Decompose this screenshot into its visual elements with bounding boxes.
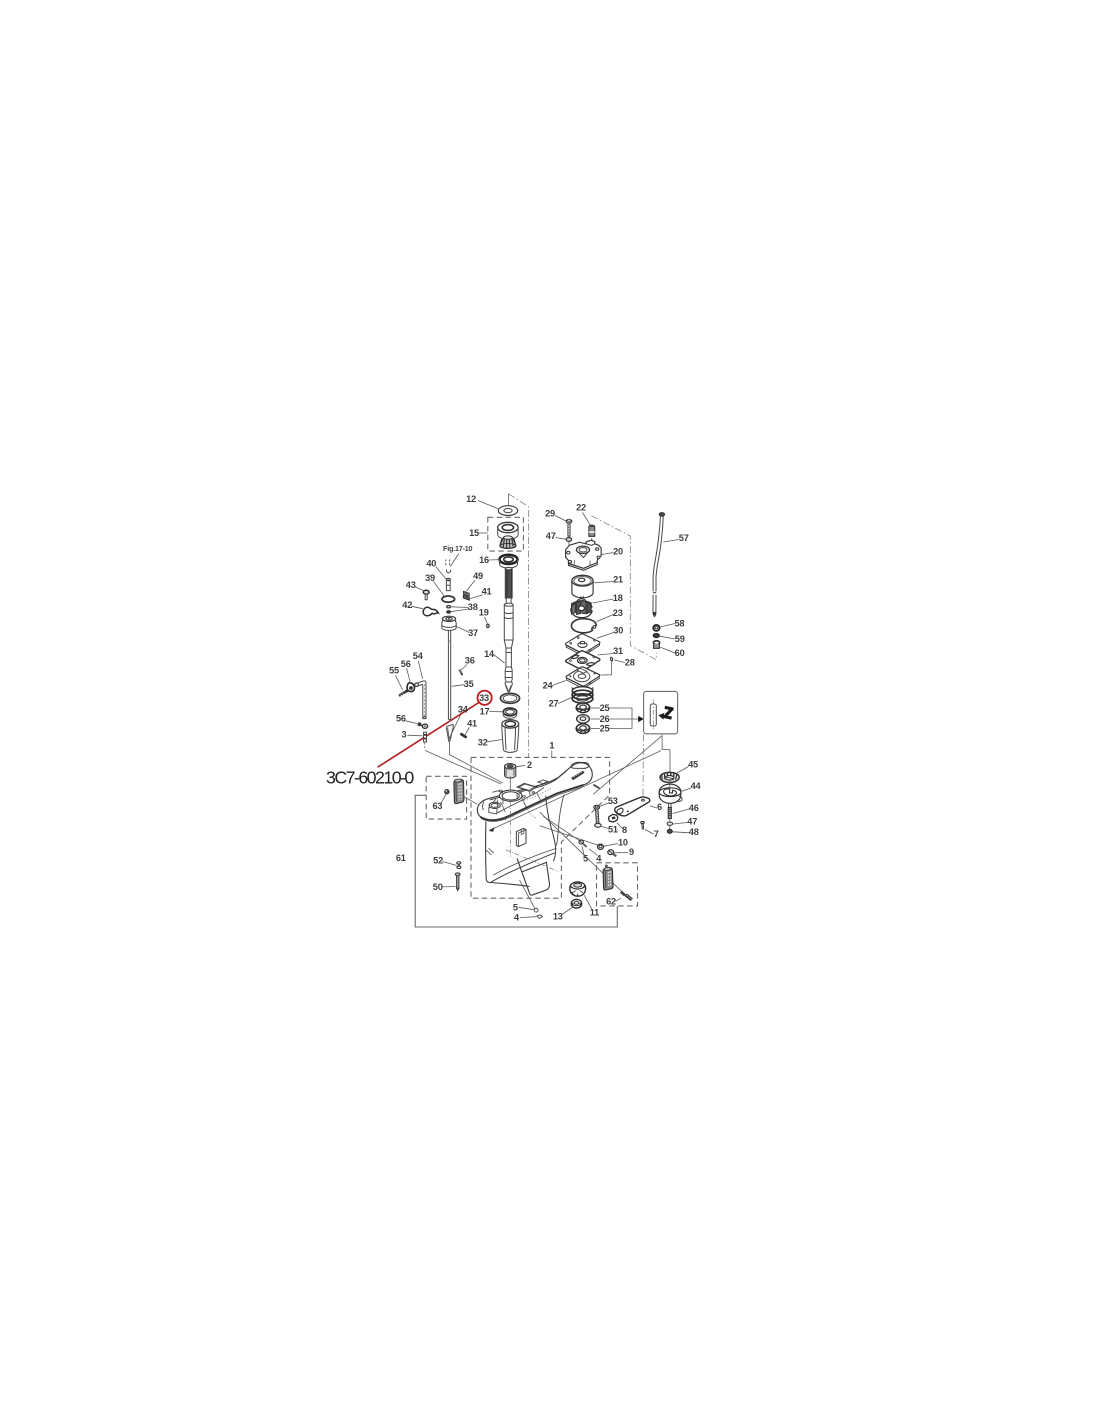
svg-text:27: 27 [549, 699, 559, 709]
svg-text:55: 55 [389, 666, 399, 676]
svg-text:16: 16 [479, 555, 489, 565]
svg-text:53: 53 [608, 796, 618, 806]
svg-text:8: 8 [622, 825, 627, 835]
svg-text:47: 47 [546, 531, 556, 541]
svg-text:18: 18 [613, 593, 623, 603]
svg-text:30: 30 [613, 626, 623, 636]
svg-text:34: 34 [458, 704, 469, 714]
svg-text:22: 22 [576, 503, 586, 513]
svg-text:45: 45 [688, 760, 698, 770]
svg-text:47: 47 [687, 817, 697, 827]
svg-text:32: 32 [478, 737, 488, 747]
svg-text:1: 1 [549, 741, 554, 751]
svg-text:51: 51 [608, 824, 618, 834]
svg-text:49: 49 [473, 571, 483, 581]
svg-text:58: 58 [674, 619, 684, 629]
svg-text:19: 19 [479, 608, 489, 618]
svg-text:15: 15 [469, 528, 479, 538]
svg-text:38: 38 [468, 602, 478, 612]
svg-text:43: 43 [406, 580, 416, 590]
svg-text:9: 9 [629, 847, 634, 857]
svg-text:44: 44 [691, 781, 702, 791]
svg-text:14: 14 [484, 649, 495, 659]
svg-text:25: 25 [600, 703, 610, 713]
svg-text:28: 28 [625, 657, 635, 667]
svg-text:24: 24 [543, 681, 554, 691]
svg-text:6: 6 [657, 802, 662, 812]
svg-text:25: 25 [600, 723, 610, 733]
svg-text:Fig.17-10: Fig.17-10 [443, 544, 473, 553]
svg-text:33: 33 [479, 693, 489, 703]
svg-text:13: 13 [553, 911, 563, 921]
svg-text:48: 48 [689, 827, 699, 837]
svg-text:23: 23 [613, 608, 623, 618]
svg-text:41: 41 [467, 718, 477, 728]
svg-text:39: 39 [425, 573, 435, 583]
svg-text:56: 56 [401, 659, 411, 669]
svg-text:35: 35 [464, 679, 474, 689]
svg-text:59: 59 [675, 634, 685, 644]
svg-text:7: 7 [654, 829, 659, 839]
svg-text:37: 37 [468, 628, 478, 638]
svg-text:36: 36 [465, 656, 475, 666]
svg-text:3: 3 [402, 730, 407, 740]
svg-text:42: 42 [402, 600, 412, 610]
svg-text:52: 52 [433, 856, 443, 866]
svg-text:31: 31 [613, 646, 623, 656]
svg-text:12: 12 [466, 494, 476, 504]
svg-text:61: 61 [396, 853, 406, 863]
svg-text:10: 10 [618, 838, 628, 848]
svg-text:57: 57 [679, 533, 689, 543]
svg-text:5: 5 [513, 903, 518, 913]
svg-text:40: 40 [426, 559, 436, 569]
svg-text:21: 21 [613, 575, 623, 585]
svg-text:2: 2 [527, 760, 532, 770]
svg-text:20: 20 [613, 547, 623, 557]
svg-text:56: 56 [396, 714, 406, 724]
svg-text:41: 41 [482, 587, 492, 597]
svg-text:46: 46 [689, 803, 699, 813]
svg-text:50: 50 [433, 882, 443, 892]
svg-text:62: 62 [606, 896, 616, 906]
svg-text:11: 11 [590, 908, 599, 918]
svg-text:29: 29 [545, 509, 555, 519]
svg-text:17: 17 [480, 707, 490, 717]
svg-text:60: 60 [675, 648, 685, 658]
svg-text:3C7-60210-0: 3C7-60210-0 [326, 768, 414, 788]
svg-text:54: 54 [413, 651, 424, 661]
